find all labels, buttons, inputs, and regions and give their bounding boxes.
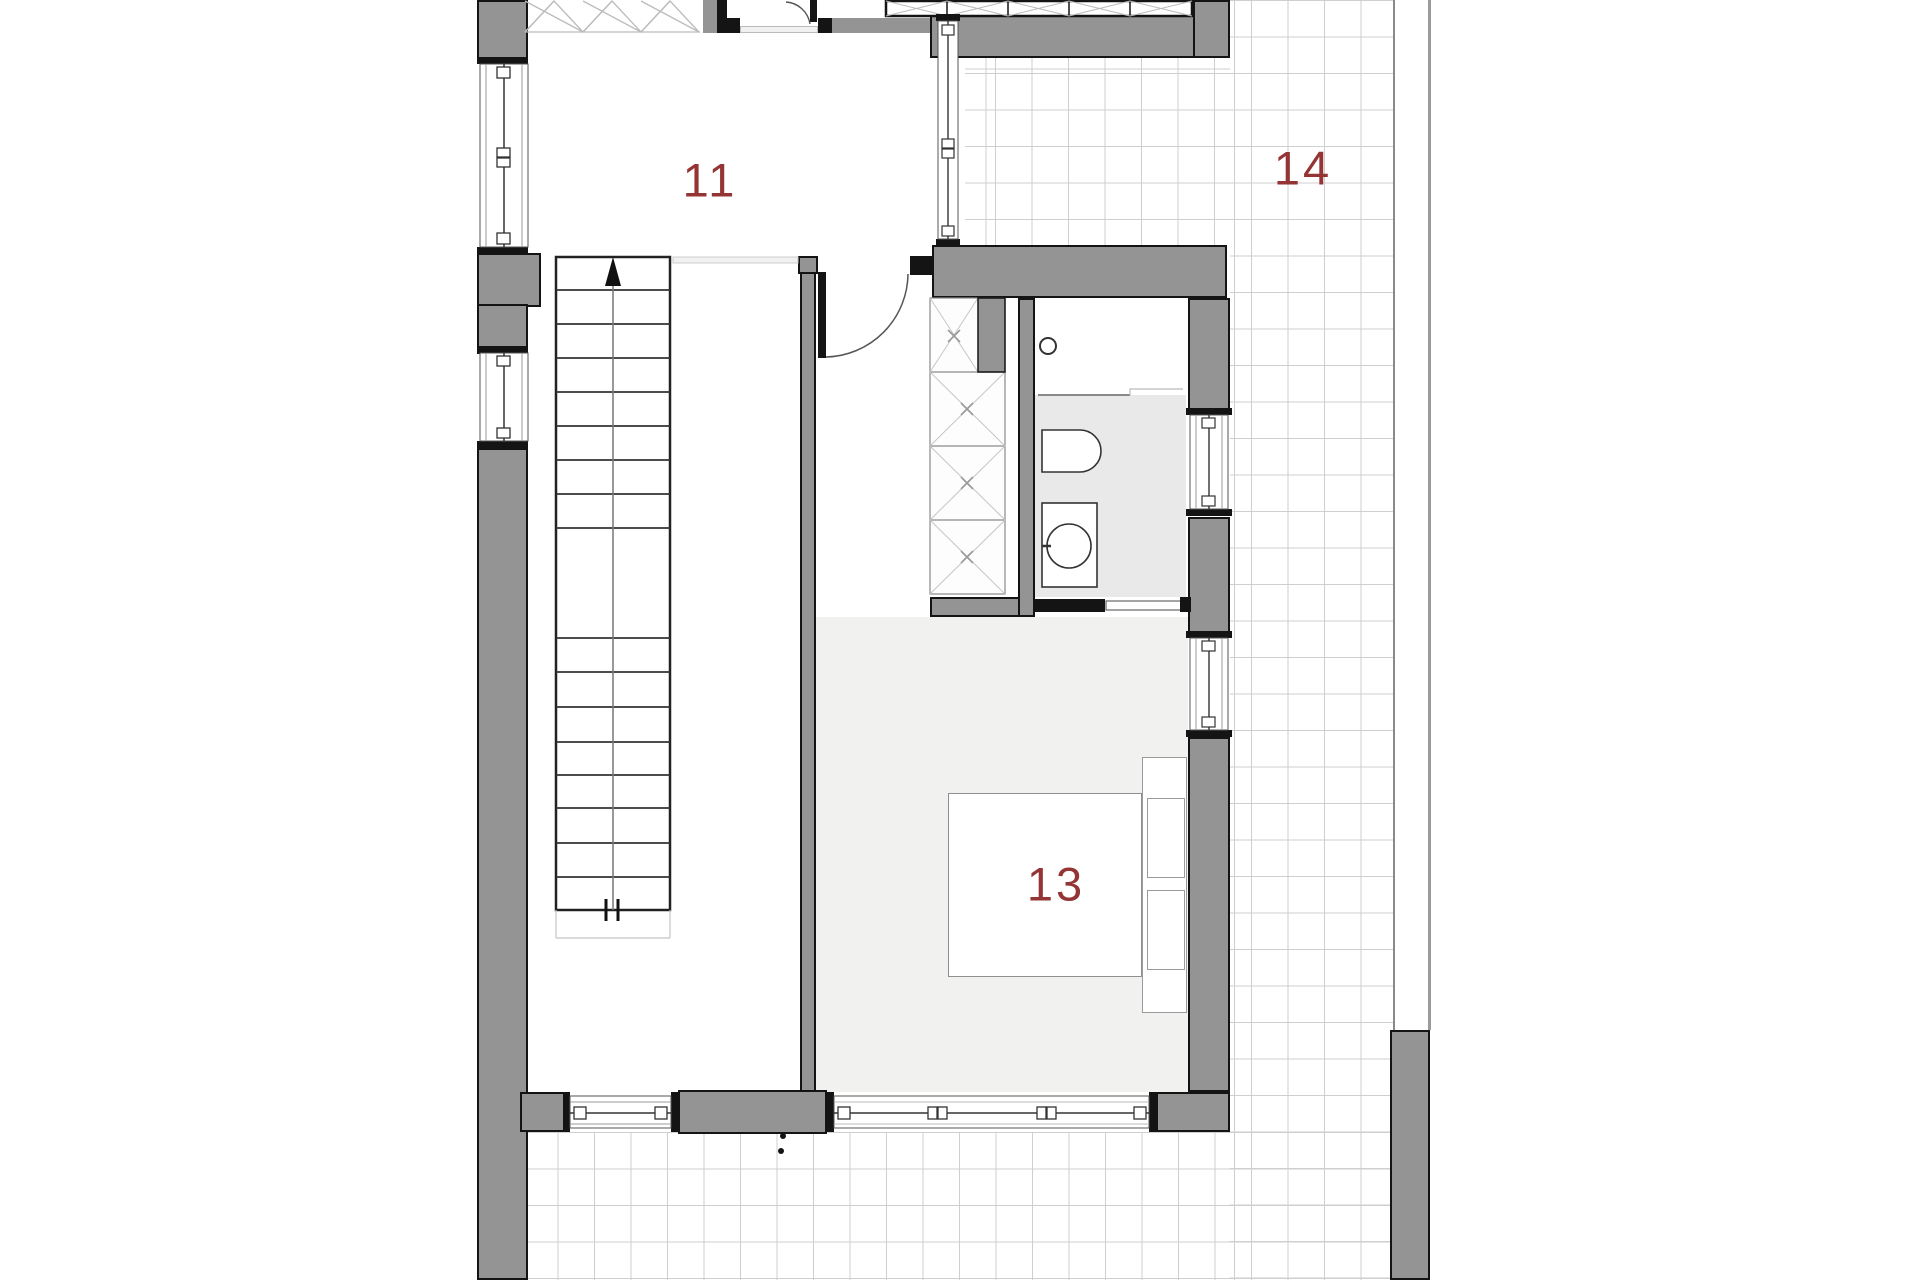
entry-door <box>786 0 817 24</box>
shower-screen <box>1035 597 1191 612</box>
window-west-1 <box>477 57 528 254</box>
wardrobe-shelf <box>978 298 1005 372</box>
bathroom-fixtures <box>1035 338 1191 612</box>
window-south-1 <box>563 1092 678 1132</box>
window-south-2 <box>827 1092 1156 1132</box>
sink-drain-icon <box>1040 338 1056 354</box>
window-bedroom-east <box>1186 631 1232 737</box>
marker-dot <box>778 1148 784 1154</box>
stair-under-line <box>556 910 670 938</box>
closet-band <box>886 1 1192 16</box>
room-divider-line <box>673 257 798 263</box>
washing-machine <box>1042 503 1097 587</box>
staircase <box>556 257 670 938</box>
window-room11-east <box>936 14 960 246</box>
door-leaf <box>810 0 817 22</box>
canopy-hatch <box>525 1 700 32</box>
hall-door <box>818 272 908 358</box>
window-west-2 <box>477 346 528 448</box>
floor-plan: 11 13 14 <box>0 0 1920 1280</box>
room-label-11: 11 <box>683 153 738 208</box>
door-swing-arc <box>826 274 908 357</box>
plan-linework <box>0 0 1920 1280</box>
wardrobe <box>930 298 1005 594</box>
room-label-13: 13 <box>1027 857 1085 912</box>
marker-dot <box>780 1133 786 1139</box>
room-label-14: 14 <box>1274 141 1332 196</box>
door-swing-arc <box>786 2 810 24</box>
door-leaf <box>818 272 826 358</box>
window-bathroom <box>1186 408 1232 516</box>
toilet <box>1042 430 1101 472</box>
